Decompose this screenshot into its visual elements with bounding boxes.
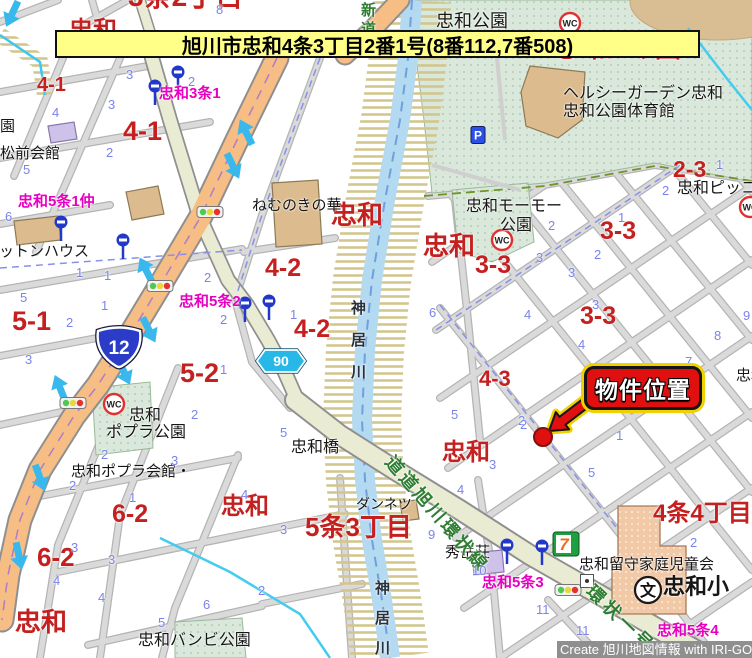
map-canvas[interactable]: WCWCWCWCP7文 忠和忠和忠和忠和忠和忠和3条2丁目忠和公園4-14-14… [0, 0, 752, 658]
building [14, 216, 61, 245]
building [472, 550, 504, 575]
title-banner: 旭川市忠和4条3丁目2番1号(8番112,7番508) [55, 30, 700, 58]
property-location-callout: 物件位置 [584, 366, 702, 410]
route-12-shield: 12 [91, 321, 147, 373]
school-building [612, 506, 686, 614]
route-12-number: 12 [108, 338, 129, 359]
building [272, 180, 322, 247]
traffic-flow-arrow [46, 372, 73, 405]
park-area [175, 618, 246, 658]
park-area [452, 183, 534, 262]
building [48, 122, 77, 143]
building [126, 186, 164, 220]
watermark: Create 旭川地図情報 with IRI-GO [557, 641, 752, 658]
route-90-shield: 90 [254, 348, 308, 374]
major-road [140, 0, 150, 32]
route-90-number: 90 [273, 353, 289, 369]
building [400, 500, 419, 521]
